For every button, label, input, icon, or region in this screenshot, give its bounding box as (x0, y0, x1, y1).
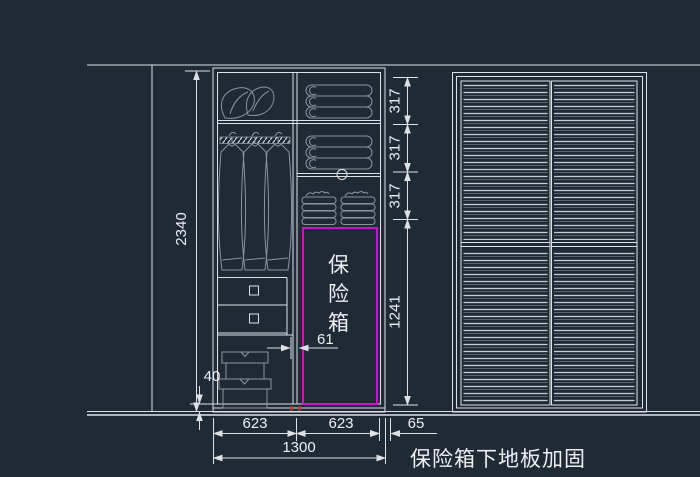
safe-box: 保 险 箱 (303, 228, 377, 404)
folded-blanket-top (306, 85, 372, 118)
dim-text-317-a: 317 (387, 88, 404, 113)
louver-panel (464, 84, 548, 240)
louver-panel (554, 84, 635, 240)
louver-panel (554, 250, 635, 402)
louver-panel (464, 250, 548, 402)
dim-text-1300: 1300 (282, 439, 315, 456)
drawer-handle (250, 286, 259, 295)
hanging-clothes (219, 132, 292, 270)
folded-clothes-stacks (302, 192, 375, 225)
annotation-floor-reinforcement: 保险箱下地板加固 (410, 448, 586, 471)
closed-wardrobe-elevation (453, 73, 647, 413)
dim-text-65: 65 (408, 415, 425, 432)
cad-viewport[interactable]: 保 险 箱 234 (0, 0, 700, 477)
dim-plinth-height: 40 (190, 368, 220, 430)
dim-text-317-b: 317 (387, 135, 404, 160)
sliding-door-right (552, 81, 638, 405)
dim-right-column: 317 317 317 1241 (387, 78, 419, 406)
dim-text-623-left: 623 (242, 415, 267, 432)
sliding-door-left (461, 81, 550, 405)
storage-boxes (219, 352, 271, 408)
safe-label-char-2: 险 (328, 283, 350, 306)
dim-text-1241: 1241 (387, 295, 404, 328)
dim-text-317-c: 317 (387, 183, 404, 208)
pillows (221, 87, 274, 118)
dim-text-623-right: 623 (328, 415, 353, 432)
drawer-unit (218, 278, 294, 336)
knob (337, 170, 347, 180)
wardrobe-outer-frame (213, 68, 385, 412)
dim-text-40: 40 (204, 368, 221, 385)
folded-blanket-middle (306, 136, 372, 169)
drawer-handle (250, 314, 259, 323)
dim-bottom: 623 623 65 1300 (214, 415, 438, 464)
safe-label-char-1: 保 (328, 254, 350, 277)
dim-text-2340: 2340 (173, 212, 190, 245)
dim-total-height: 2340 (173, 71, 210, 412)
dim-text-61: 61 (317, 331, 334, 348)
cad-drawing-screenshot: 保 险 箱 234 (0, 0, 700, 477)
open-wardrobe-elevation: 保 险 箱 (213, 68, 385, 412)
